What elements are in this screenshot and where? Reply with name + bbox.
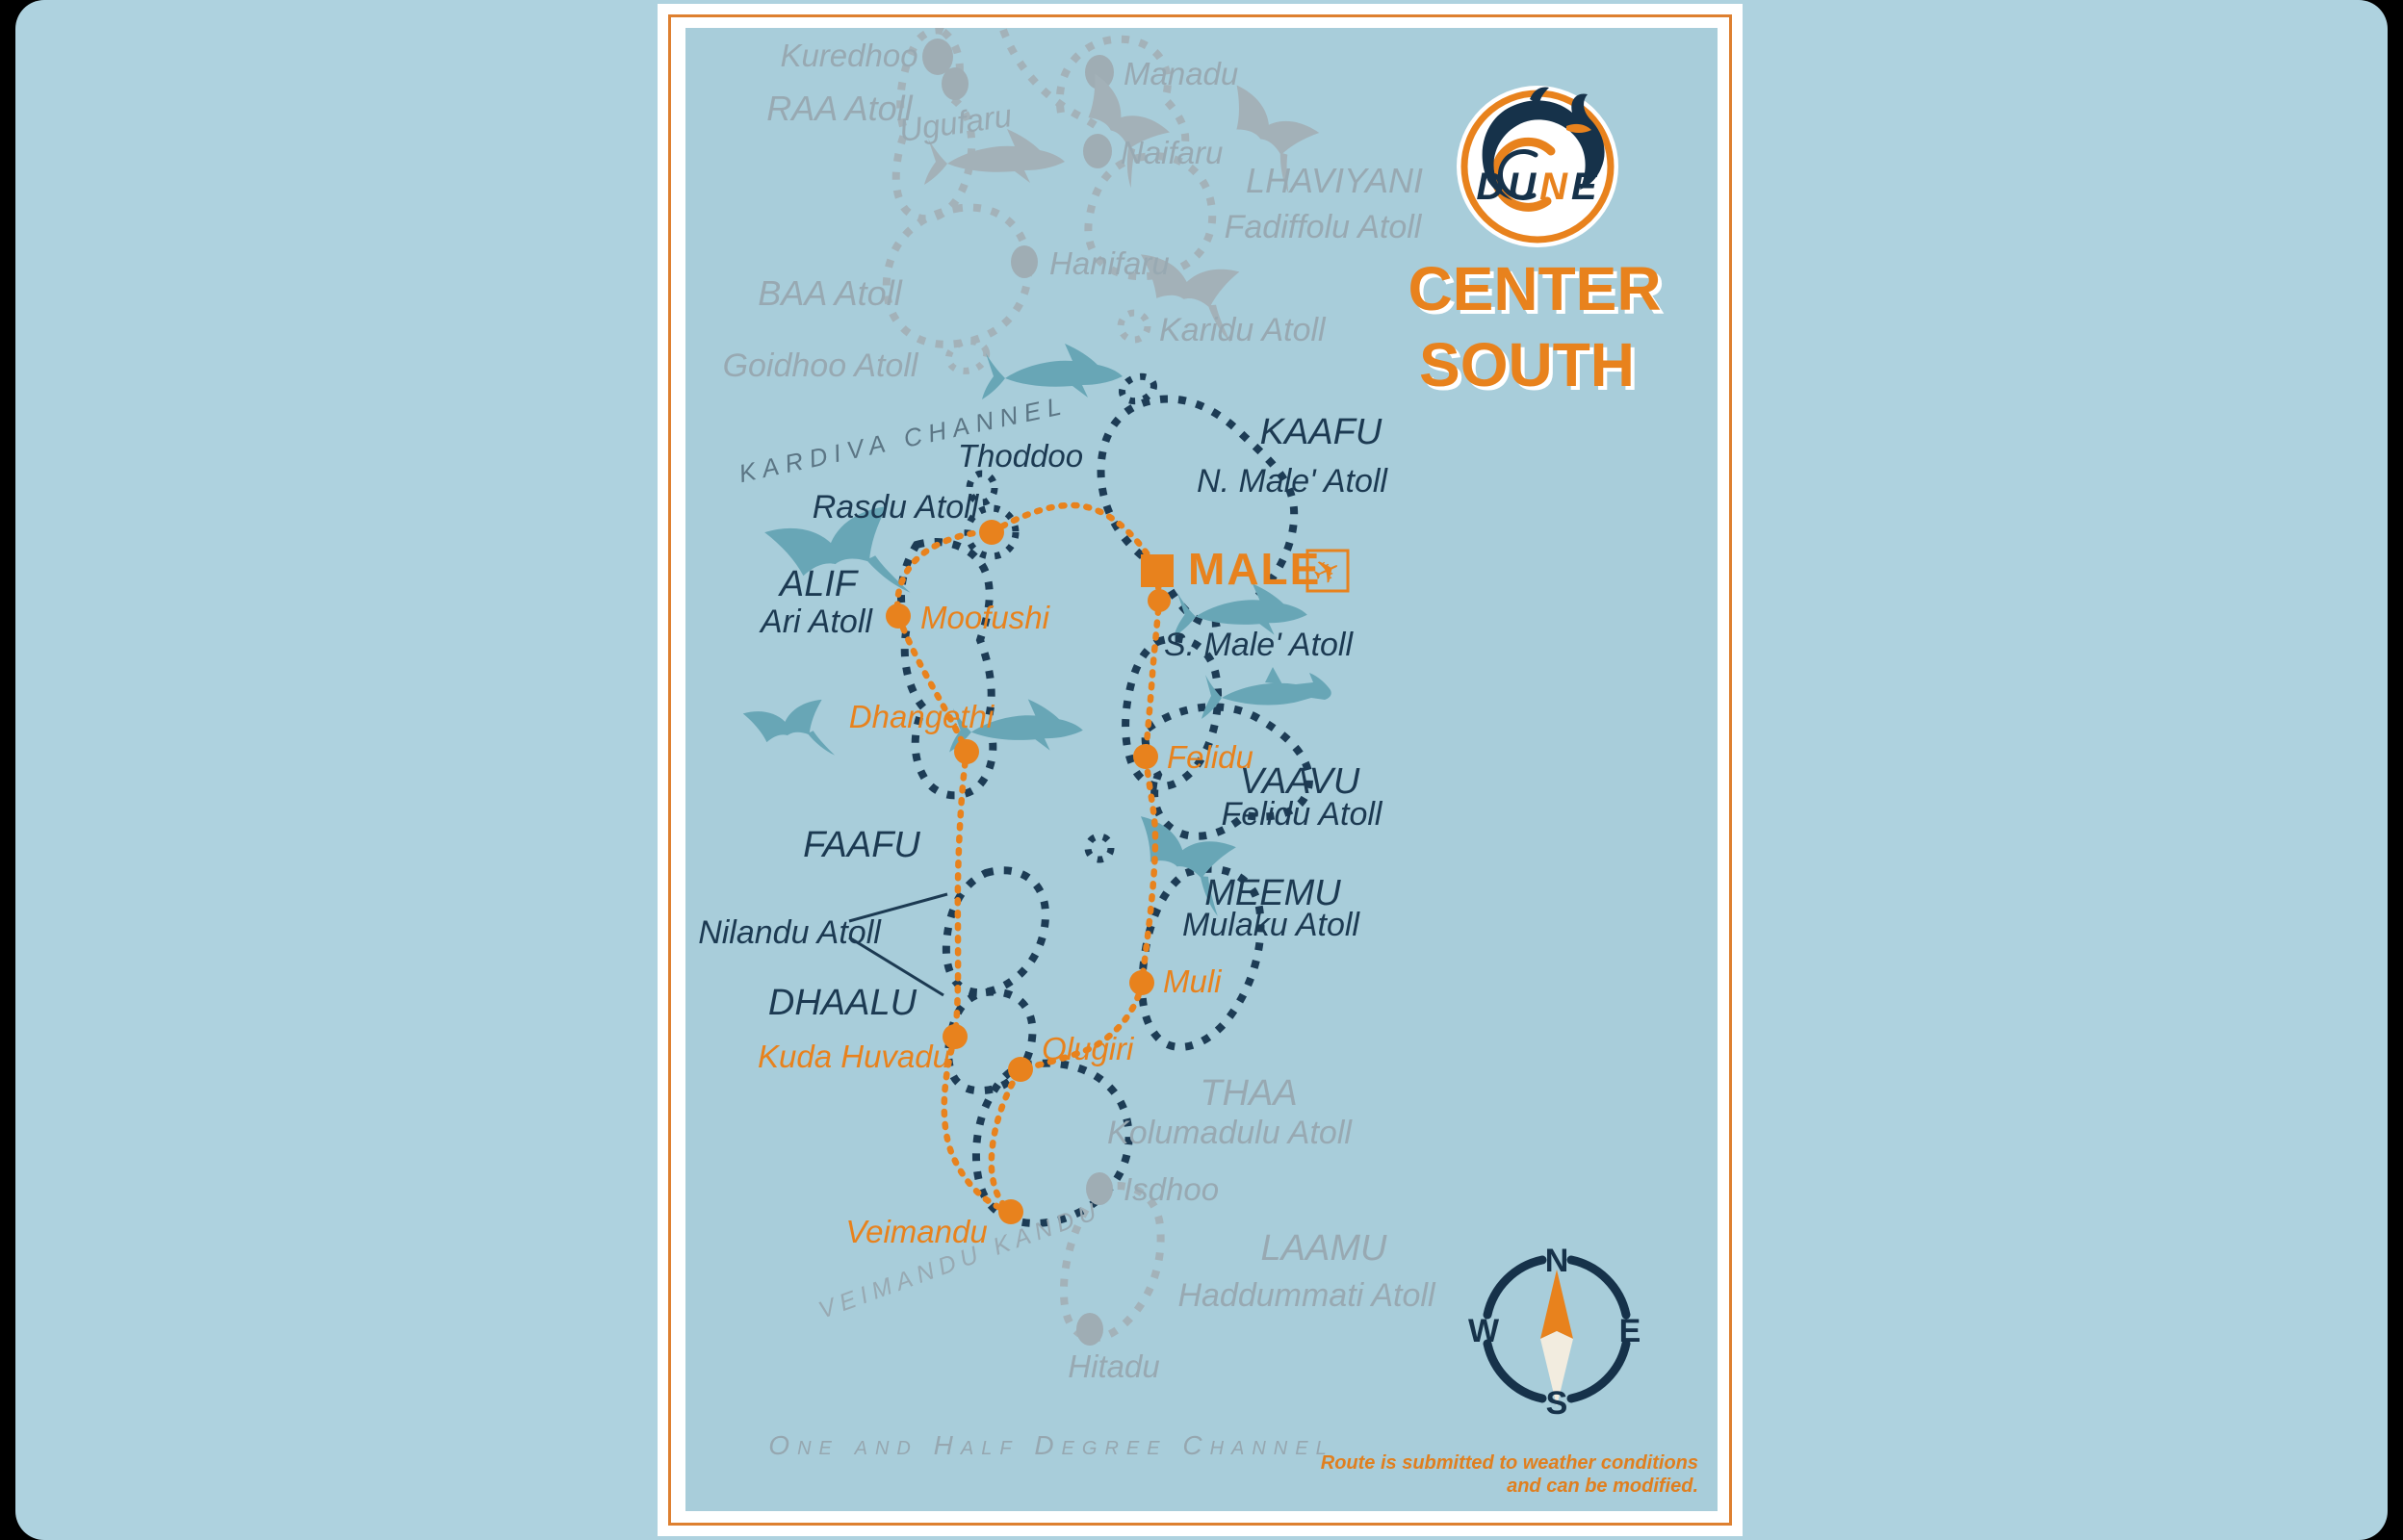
label-dhangethi: Dhangethi <box>849 699 995 734</box>
label-hanifaru: Hanifaru <box>1049 245 1170 281</box>
disclaimer-line2: and can be modified. <box>1507 1476 1698 1497</box>
island-dot-naifaru <box>1083 134 1112 168</box>
label-n-male-atoll: N. Male' Atoll <box>1197 463 1388 500</box>
route-stop-dot-moofushi <box>886 603 911 629</box>
logo-letter: N <box>1539 166 1569 208</box>
atoll-outline-raa-trail <box>1003 30 1099 128</box>
label-ugufaru: Ugufaru <box>897 97 1014 148</box>
label-alif: ALIF <box>778 564 859 604</box>
island-dot-hitadu <box>1076 1313 1103 1346</box>
shark-icon <box>982 344 1123 399</box>
label-felidu-atoll: Felidu Atoll <box>1222 796 1383 833</box>
route-stop-dot-rasdu <box>979 520 1004 545</box>
compass-arc-ne <box>1571 1260 1626 1315</box>
label-hitadu: Hitadu <box>1068 1348 1159 1384</box>
label-goidhoo-atoll: Goidhoo Atoll <box>723 347 919 384</box>
island-dot-hanifaru <box>1011 245 1038 278</box>
title-line2: SOUTH <box>1419 330 1635 399</box>
label-faafu: FAAFU <box>803 825 920 865</box>
route-stop-dot-felidu <box>1133 744 1158 769</box>
compass-arc-nw <box>1487 1260 1542 1315</box>
compass-letter-w: W <box>1468 1313 1500 1349</box>
label-male: MALE <box>1188 544 1321 594</box>
label-mulaku-atoll: Mulaku Atoll <box>1182 907 1360 943</box>
maldives-route-map: Kuredhoo RAA Atoll Ugufaru Manadu Naifar… <box>685 28 1718 1511</box>
label-laamu: LAAMU <box>1261 1228 1387 1269</box>
compass-rose: N E S W <box>1468 1243 1641 1422</box>
label-thaa: THAA <box>1200 1073 1297 1114</box>
route-stop-dot-veimandu <box>998 1199 1023 1224</box>
label-nilandu-atoll: Nilandu Atoll <box>698 914 882 951</box>
male-square-marker <box>1141 554 1174 587</box>
atoll-ring-vattaru <box>1088 836 1111 860</box>
disclaimer-line1: Route is submitted to weather conditions <box>1321 1452 1698 1474</box>
atoll-ring-gaafaru <box>1119 372 1157 405</box>
label-raa-atoll: RAA Atoll <box>766 89 913 128</box>
logo-letter: D <box>1476 166 1506 208</box>
route-stop-dot-muli <box>1129 970 1154 995</box>
label-muli: Muli <box>1163 963 1223 999</box>
dune-logo: DUNE <box>1457 86 1618 247</box>
atoll-ring-karidu <box>1121 313 1148 340</box>
label-karidu-atoll: Karidu Atoll <box>1159 312 1327 348</box>
page-background: Kuredhoo RAA Atoll Ugufaru Manadu Naifar… <box>15 0 2388 1540</box>
compass-letter-s: S <box>1546 1385 1568 1422</box>
route-stop-dot-olugiri <box>1008 1057 1033 1082</box>
label-baa-atoll: BAA Atoll <box>758 273 902 313</box>
label-lhaviyani: LHAVIYANI <box>1246 161 1423 200</box>
label-kuda-huvadu: Kuda Huvadu <box>758 1039 950 1074</box>
atoll-outline-ari <box>901 542 993 795</box>
route-stop-dot-dhangethi <box>954 739 979 764</box>
compass-arc-sw <box>1487 1344 1542 1399</box>
label-moofushi: Moofushi <box>920 600 1051 635</box>
compass-needle-north <box>1540 1270 1573 1339</box>
logo-wordmark: DUNE <box>1476 166 1598 208</box>
label-thoddoo: Thoddoo <box>958 438 1083 474</box>
logo-letter: U <box>1508 166 1537 208</box>
label-one-and-half-degree-channel: One and Half Degree Channel <box>768 1430 1333 1460</box>
manta-ray-icon <box>743 699 835 770</box>
label-dhaalu: DHAALU <box>768 983 917 1023</box>
title-line1: CENTER <box>1408 254 1661 323</box>
compass-letter-n: N <box>1545 1243 1569 1279</box>
atoll-ring-goidhoo <box>945 337 990 374</box>
logo-letter: E <box>1571 166 1599 208</box>
label-naifaru: Naifaru <box>1121 135 1223 170</box>
route-disclaimer: Route is submitted to weather conditions… <box>1321 1452 1698 1497</box>
label-kaafu: KAAFU <box>1260 412 1382 452</box>
label-kolumadulu-atoll: Kolumadulu Atoll <box>1107 1115 1353 1151</box>
route-stop-dot-south-male <box>1148 589 1171 612</box>
label-manadu: Manadu <box>1124 56 1238 91</box>
label-fadiffolu-atoll: Fadiffolu Atoll <box>1225 209 1423 245</box>
map-poster: Kuredhoo RAA Atoll Ugufaru Manadu Naifar… <box>658 4 1743 1536</box>
label-rasdu-atoll: Rasdu Atoll <box>813 489 980 526</box>
label-haddummati-atoll: Haddummati Atoll <box>1177 1277 1436 1314</box>
atoll-outline-faafu <box>946 870 1046 992</box>
poster-title: CENTER CENTER SOUTH SOUTH <box>1408 254 1665 403</box>
label-kuredhoo: Kuredhoo <box>780 38 917 73</box>
label-ari-atoll: Ari Atoll <box>759 603 873 640</box>
atoll-outline-baa <box>887 208 1028 345</box>
map-panel: Kuredhoo RAA Atoll Ugufaru Manadu Naifar… <box>685 28 1718 1511</box>
island-dot-ugufaru <box>942 67 969 100</box>
label-s-male-atoll: S. Male' Atoll <box>1164 627 1355 663</box>
compass-letter-e: E <box>1619 1313 1641 1349</box>
screenshot-stage: Kuredhoo RAA Atoll Ugufaru Manadu Naifar… <box>0 0 2403 1540</box>
compass-arc-se <box>1571 1344 1626 1399</box>
label-olugiri: Olugiri <box>1042 1031 1135 1066</box>
label-isdhoo: Isdhoo <box>1124 1171 1219 1207</box>
